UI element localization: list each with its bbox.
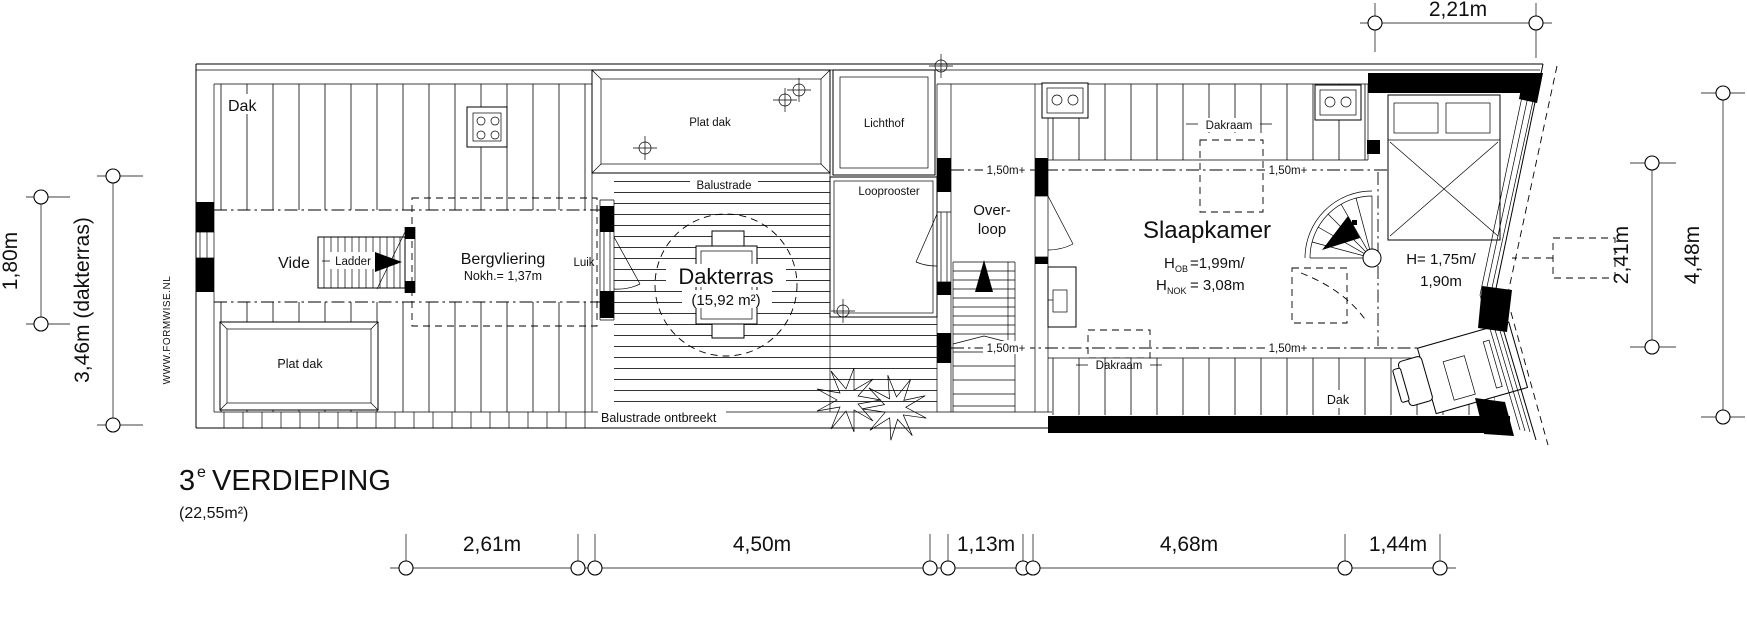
roof-opening-outline: [1292, 268, 1347, 323]
staircase: [953, 260, 1015, 412]
dimension-marker: [106, 418, 120, 432]
dimension-label-bottom-5: 1,44m: [1369, 533, 1427, 556]
wall-segment: [1035, 257, 1048, 264]
dimension-bottom: 2,61m 4,50m 1,13m 4,68m 1,44m: [390, 533, 1456, 575]
dimension-label-left-outer: 3,46m (dakterras): [71, 217, 94, 383]
bed: [1388, 95, 1500, 240]
svg-text:H: H: [1164, 255, 1175, 272]
note-bed-height-2: 1,90m: [1420, 273, 1462, 290]
level-mark: 1,50m+: [1269, 343, 1308, 355]
room-label-luik: Luik: [573, 257, 594, 269]
dimension-marker: [1368, 16, 1382, 30]
watermark: WWW.FORMWISE.NL: [162, 276, 173, 385]
wall-segment: [1478, 286, 1512, 332]
svg-text:=1,99m/: =1,99m/: [1190, 255, 1245, 272]
level-mark: 1,50m+: [1269, 165, 1308, 177]
room-label-balustrade: Balustrade: [697, 180, 752, 192]
wall-segment: [405, 281, 415, 293]
wall-segment: [600, 206, 614, 232]
cupboard: [1048, 267, 1076, 327]
door-swing: [916, 214, 937, 266]
room-label-bergvliering: Bergvliering: [461, 251, 545, 268]
wall-segment: [937, 333, 951, 363]
dimension-label-bottom-3: 1,13m: [957, 533, 1015, 556]
door-swing: [1048, 196, 1073, 250]
wall-segment: [1368, 73, 1538, 93]
dimension-label-left-inner: 1,80m: [0, 232, 22, 290]
dimension-marker: [1338, 561, 1352, 575]
dimension-left-outer: 3,46m (dakterras): [71, 169, 143, 432]
section-left-roof: Dak Vide Ladder Bergvliering Nokh: [214, 84, 600, 412]
door-swing: [1301, 273, 1367, 322]
title-floor-sup: e: [197, 464, 206, 481]
dimension-marker: [1645, 340, 1659, 354]
dimension-label-top: 2,21m: [1429, 0, 1487, 21]
dimension-right-outer: 4,48m: [1681, 86, 1745, 424]
dimension-marker: [1529, 16, 1543, 30]
room-label-lichthof: Lichthof: [864, 118, 905, 130]
dimension-right-inner: 2,41m: [1610, 156, 1676, 354]
room-label-plat-dak-top: Plat dak: [689, 117, 731, 129]
level-mark: 1,50m+: [987, 343, 1026, 355]
dimension-marker: [106, 169, 120, 183]
plat-dak-left: Plat dak: [220, 322, 378, 410]
label-dakraam-top: Dakraam: [1206, 120, 1253, 132]
wall-segment: [196, 258, 214, 292]
dimension-left-inner: 1,80m: [0, 190, 70, 331]
wall-segment: [1035, 158, 1048, 196]
room-label-dakterras: Dakterras: [678, 264, 773, 289]
wall-segment: [937, 158, 951, 192]
dimension-marker: [1645, 156, 1659, 170]
wall-segment: [405, 227, 415, 239]
dimension-marker: [1716, 86, 1730, 100]
title-area: (22,55m²): [179, 505, 248, 522]
room-note-bergvliering: Nokh.= 1,37m: [464, 269, 542, 283]
roof-vent-icon: [1042, 83, 1088, 118]
stair-up-arrow-icon: [975, 260, 993, 292]
level-mark: 1,50m+: [987, 165, 1026, 177]
room-height-note: H OB =1,99m/ H NOK = 3,08m: [1156, 255, 1245, 296]
dimension-marker: [588, 561, 602, 575]
wall-segment: [196, 202, 214, 232]
title-floor-number: 3: [179, 465, 195, 497]
floor-plan-page: Dak Vide Ladder Bergvliering Nokh: [0, 0, 1747, 631]
dimension-marker: [1026, 561, 1040, 575]
drawing-title: 3 e VERDIEPING (22,55m²): [179, 464, 391, 522]
roof-vent-icon: [1315, 85, 1361, 120]
roof-vent-icon: [467, 107, 507, 147]
plat-dak-top: Plat dak: [592, 70, 830, 173]
room-label-dak-left: Dak: [228, 98, 257, 115]
wall-segment: [1367, 140, 1380, 154]
spiral-staircase: [1305, 191, 1381, 267]
floor-plan-svg: Dak Vide Ladder Bergvliering Nokh: [0, 0, 1747, 631]
projection-outline: [1553, 238, 1615, 278]
dimension-marker: [1433, 561, 1447, 575]
room-label-looprooster: Looprooster: [858, 186, 920, 198]
title-floor-name: VERDIEPING: [212, 465, 391, 497]
dimension-marker: [399, 561, 413, 575]
dimension-marker: [1716, 410, 1730, 424]
dimension-label-bottom-2: 4,50m: [733, 533, 791, 556]
dimension-label-bottom-4: 4,68m: [1160, 533, 1218, 556]
dimension-top: 2,21m: [1360, 0, 1552, 58]
roof-hatch: [214, 84, 592, 210]
room-label-vide: Vide: [278, 255, 310, 272]
lichthof: Lichthof: [833, 54, 953, 175]
svg-text:H: H: [1156, 277, 1167, 294]
bed-nook: H= 1,75m/ 1,90m: [1368, 64, 1615, 445]
ladder-label: Ladder: [335, 256, 371, 268]
note-balustrade-ontbreekt: Balustrade ontbreekt: [601, 411, 717, 425]
dimension-label-bottom-1: 2,61m: [463, 533, 521, 556]
svg-text:= 3,08m: = 3,08m: [1190, 277, 1245, 294]
wall-segment: [1048, 416, 1510, 433]
room-label-dak-right: Dak: [1327, 393, 1350, 407]
dimension-marker: [923, 561, 937, 575]
room-area-dakterras: (15,92 m²): [691, 292, 760, 309]
svg-text:OB: OB: [1175, 264, 1188, 274]
svg-text:NOK: NOK: [1167, 286, 1187, 296]
dimension-label-right-inner: 2,41m: [1610, 226, 1633, 284]
room-label-overloop-1: Over-: [973, 202, 1011, 219]
room-label-plat-dak-left: Plat dak: [277, 357, 323, 371]
dimension-marker: [941, 561, 955, 575]
dimension-label-right-outer: 4,48m: [1681, 226, 1704, 284]
dimension-marker: [571, 561, 585, 575]
deck-boards: [830, 317, 937, 412]
ladder-icon: Ladder: [318, 232, 405, 289]
room-label-overloop-2: loop: [978, 221, 1006, 238]
room-label-slaapkamer: Slaapkamer: [1143, 217, 1271, 244]
note-bed-height-1: H= 1,75m/: [1406, 251, 1476, 268]
wall-segment: [937, 282, 951, 295]
dimension-marker: [34, 190, 48, 204]
wall-segment: [600, 291, 614, 318]
dimension-marker: [34, 317, 48, 331]
